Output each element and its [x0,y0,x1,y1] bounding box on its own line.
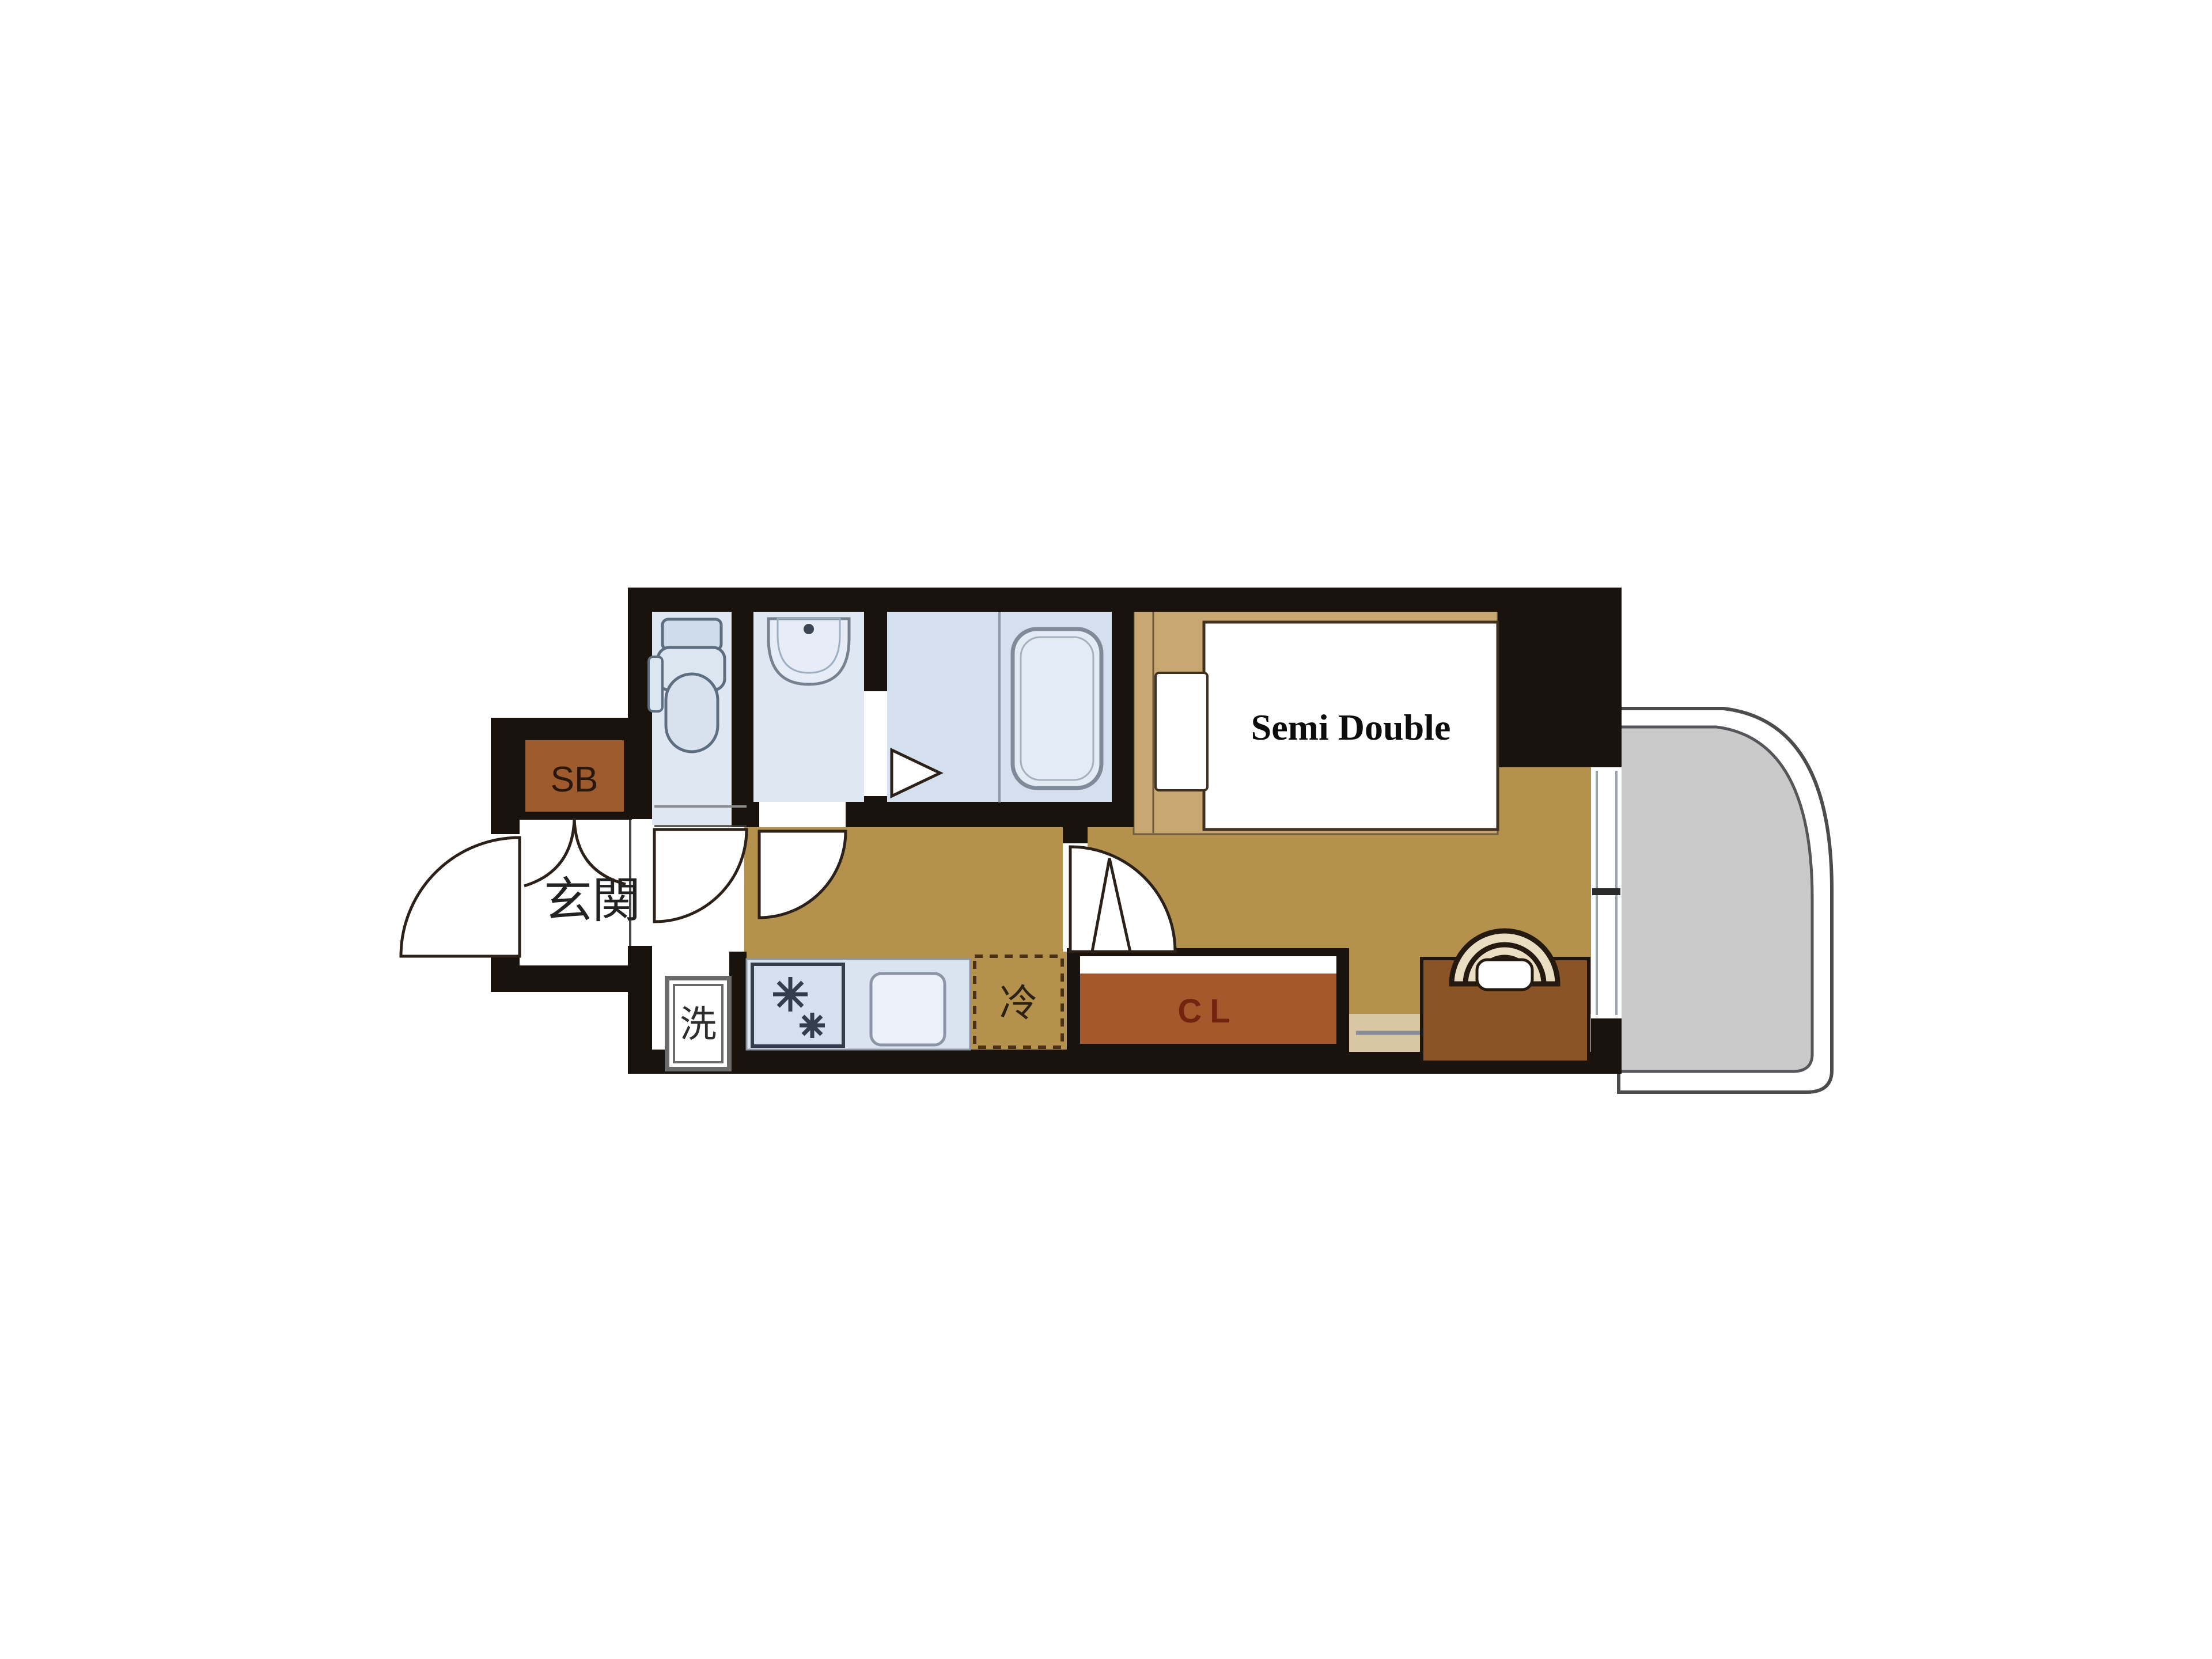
wall-stub-kitchen [729,952,747,1051]
bathtub-icon [1013,629,1101,788]
fridge-label: 冷 [999,982,1037,1024]
closet-label: CL [1177,993,1238,1030]
toilet-flush-panel-icon [649,657,662,711]
washbasin-faucet-icon [804,624,814,634]
pillow [1156,673,1207,790]
balcony-window [1591,767,1622,1018]
window-sash-divider [1592,888,1620,895]
balcony-deck [1619,727,1812,1071]
chair-seat-icon [1477,960,1532,990]
wall-bath-bedroom [1112,611,1134,827]
bathroom-door-gap [864,691,887,796]
wall-top [628,588,1622,612]
toilet-bowl-icon [666,674,718,752]
entrance-label: 玄関 [544,873,641,927]
front-door-swing-arc [401,838,520,956]
toilet-tank-icon [662,619,721,650]
stove-icon [752,964,843,1046]
closet-front-strip [1080,956,1336,974]
shoe-box-label: SB [551,760,599,800]
kitchen-sink-icon [871,974,945,1045]
wall-toilet-washroom [732,611,753,827]
washroom-door-gap [759,802,846,827]
entrance-wall-bottom [491,965,652,992]
wall-stub-bedroom-door [1063,825,1088,844]
balcony [1619,709,1832,1092]
floor-plan-page: SB 玄関 洗 冷 CL Semi Double [0,0,2212,1659]
floor-plan-canvas: SB 玄関 洗 冷 CL Semi Double [0,0,2212,1659]
wall-block-top-right [1498,588,1622,767]
washer-label: 洗 [680,1003,717,1045]
bed-size-label: Semi Double [1251,707,1451,748]
